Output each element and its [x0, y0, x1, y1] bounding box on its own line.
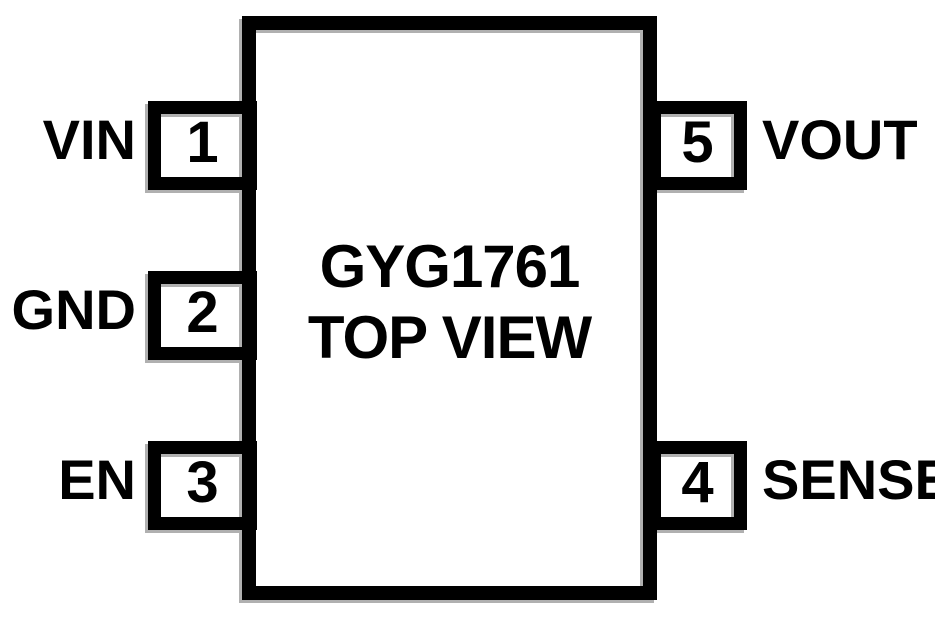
pin-2-label-gnd: GND [0, 265, 136, 354]
pin-3-label-en: EN [0, 435, 136, 524]
chip-part-number: GYG1761 [320, 231, 580, 302]
pin-4-number: 4 [648, 438, 747, 527]
pin-5-number: 5 [648, 98, 747, 187]
pin-4-label-sense: SENSE [762, 435, 935, 524]
pinout-diagram: GYG1761 TOP VIEW 1 2 3 5 4 VIN GND EN VO… [0, 0, 935, 619]
pin-5-label-vout: VOUT [762, 95, 935, 184]
pin-1-label-vin: VIN [0, 95, 136, 184]
chip-title: GYG1761 TOP VIEW [242, 10, 657, 594]
pin-2-number: 2 [148, 268, 257, 357]
pin-1-number: 1 [148, 98, 257, 187]
pin-3-number: 3 [148, 438, 257, 527]
chip-view-label: TOP VIEW [308, 302, 591, 373]
